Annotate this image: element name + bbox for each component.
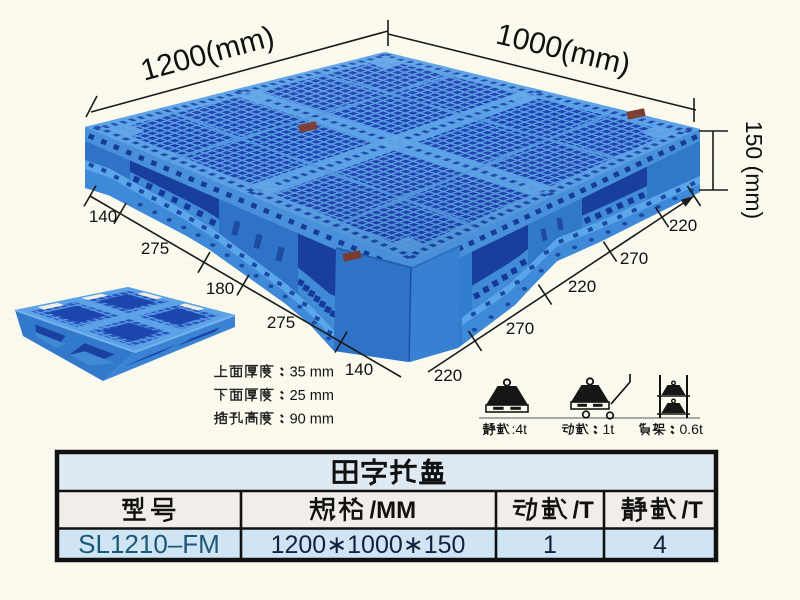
svg-text:4: 4 <box>653 531 667 559</box>
svg-text:180: 180 <box>206 279 234 298</box>
svg-text:270: 270 <box>620 249 648 268</box>
svg-text:220: 220 <box>434 366 462 385</box>
svg-text:35 mm: 35 mm <box>290 365 334 381</box>
svg-text:SL1210–FM: SL1210–FM <box>78 529 220 559</box>
svg-text:1200∗1000∗150: 1200∗1000∗150 <box>271 531 466 559</box>
svg-text:25 mm: 25 mm <box>290 388 334 404</box>
svg-text:140: 140 <box>345 360 373 379</box>
svg-text:140: 140 <box>89 207 117 226</box>
svg-text:275: 275 <box>267 313 295 332</box>
svg-text:/T: /T <box>573 497 595 524</box>
svg-text:0.6t: 0.6t <box>680 421 703 437</box>
svg-text:1t: 1t <box>603 421 615 437</box>
svg-text:150 (mm): 150 (mm) <box>741 121 767 219</box>
svg-text:/T: /T <box>682 497 704 524</box>
svg-text:220: 220 <box>669 216 697 235</box>
svg-text:220: 220 <box>568 277 596 296</box>
svg-text:270: 270 <box>506 319 534 338</box>
svg-text:90 mm: 90 mm <box>290 412 334 428</box>
svg-text:/MM: /MM <box>370 497 417 524</box>
svg-text::4t: :4t <box>512 421 528 437</box>
svg-text:275: 275 <box>141 239 169 258</box>
svg-text:1: 1 <box>543 531 557 559</box>
